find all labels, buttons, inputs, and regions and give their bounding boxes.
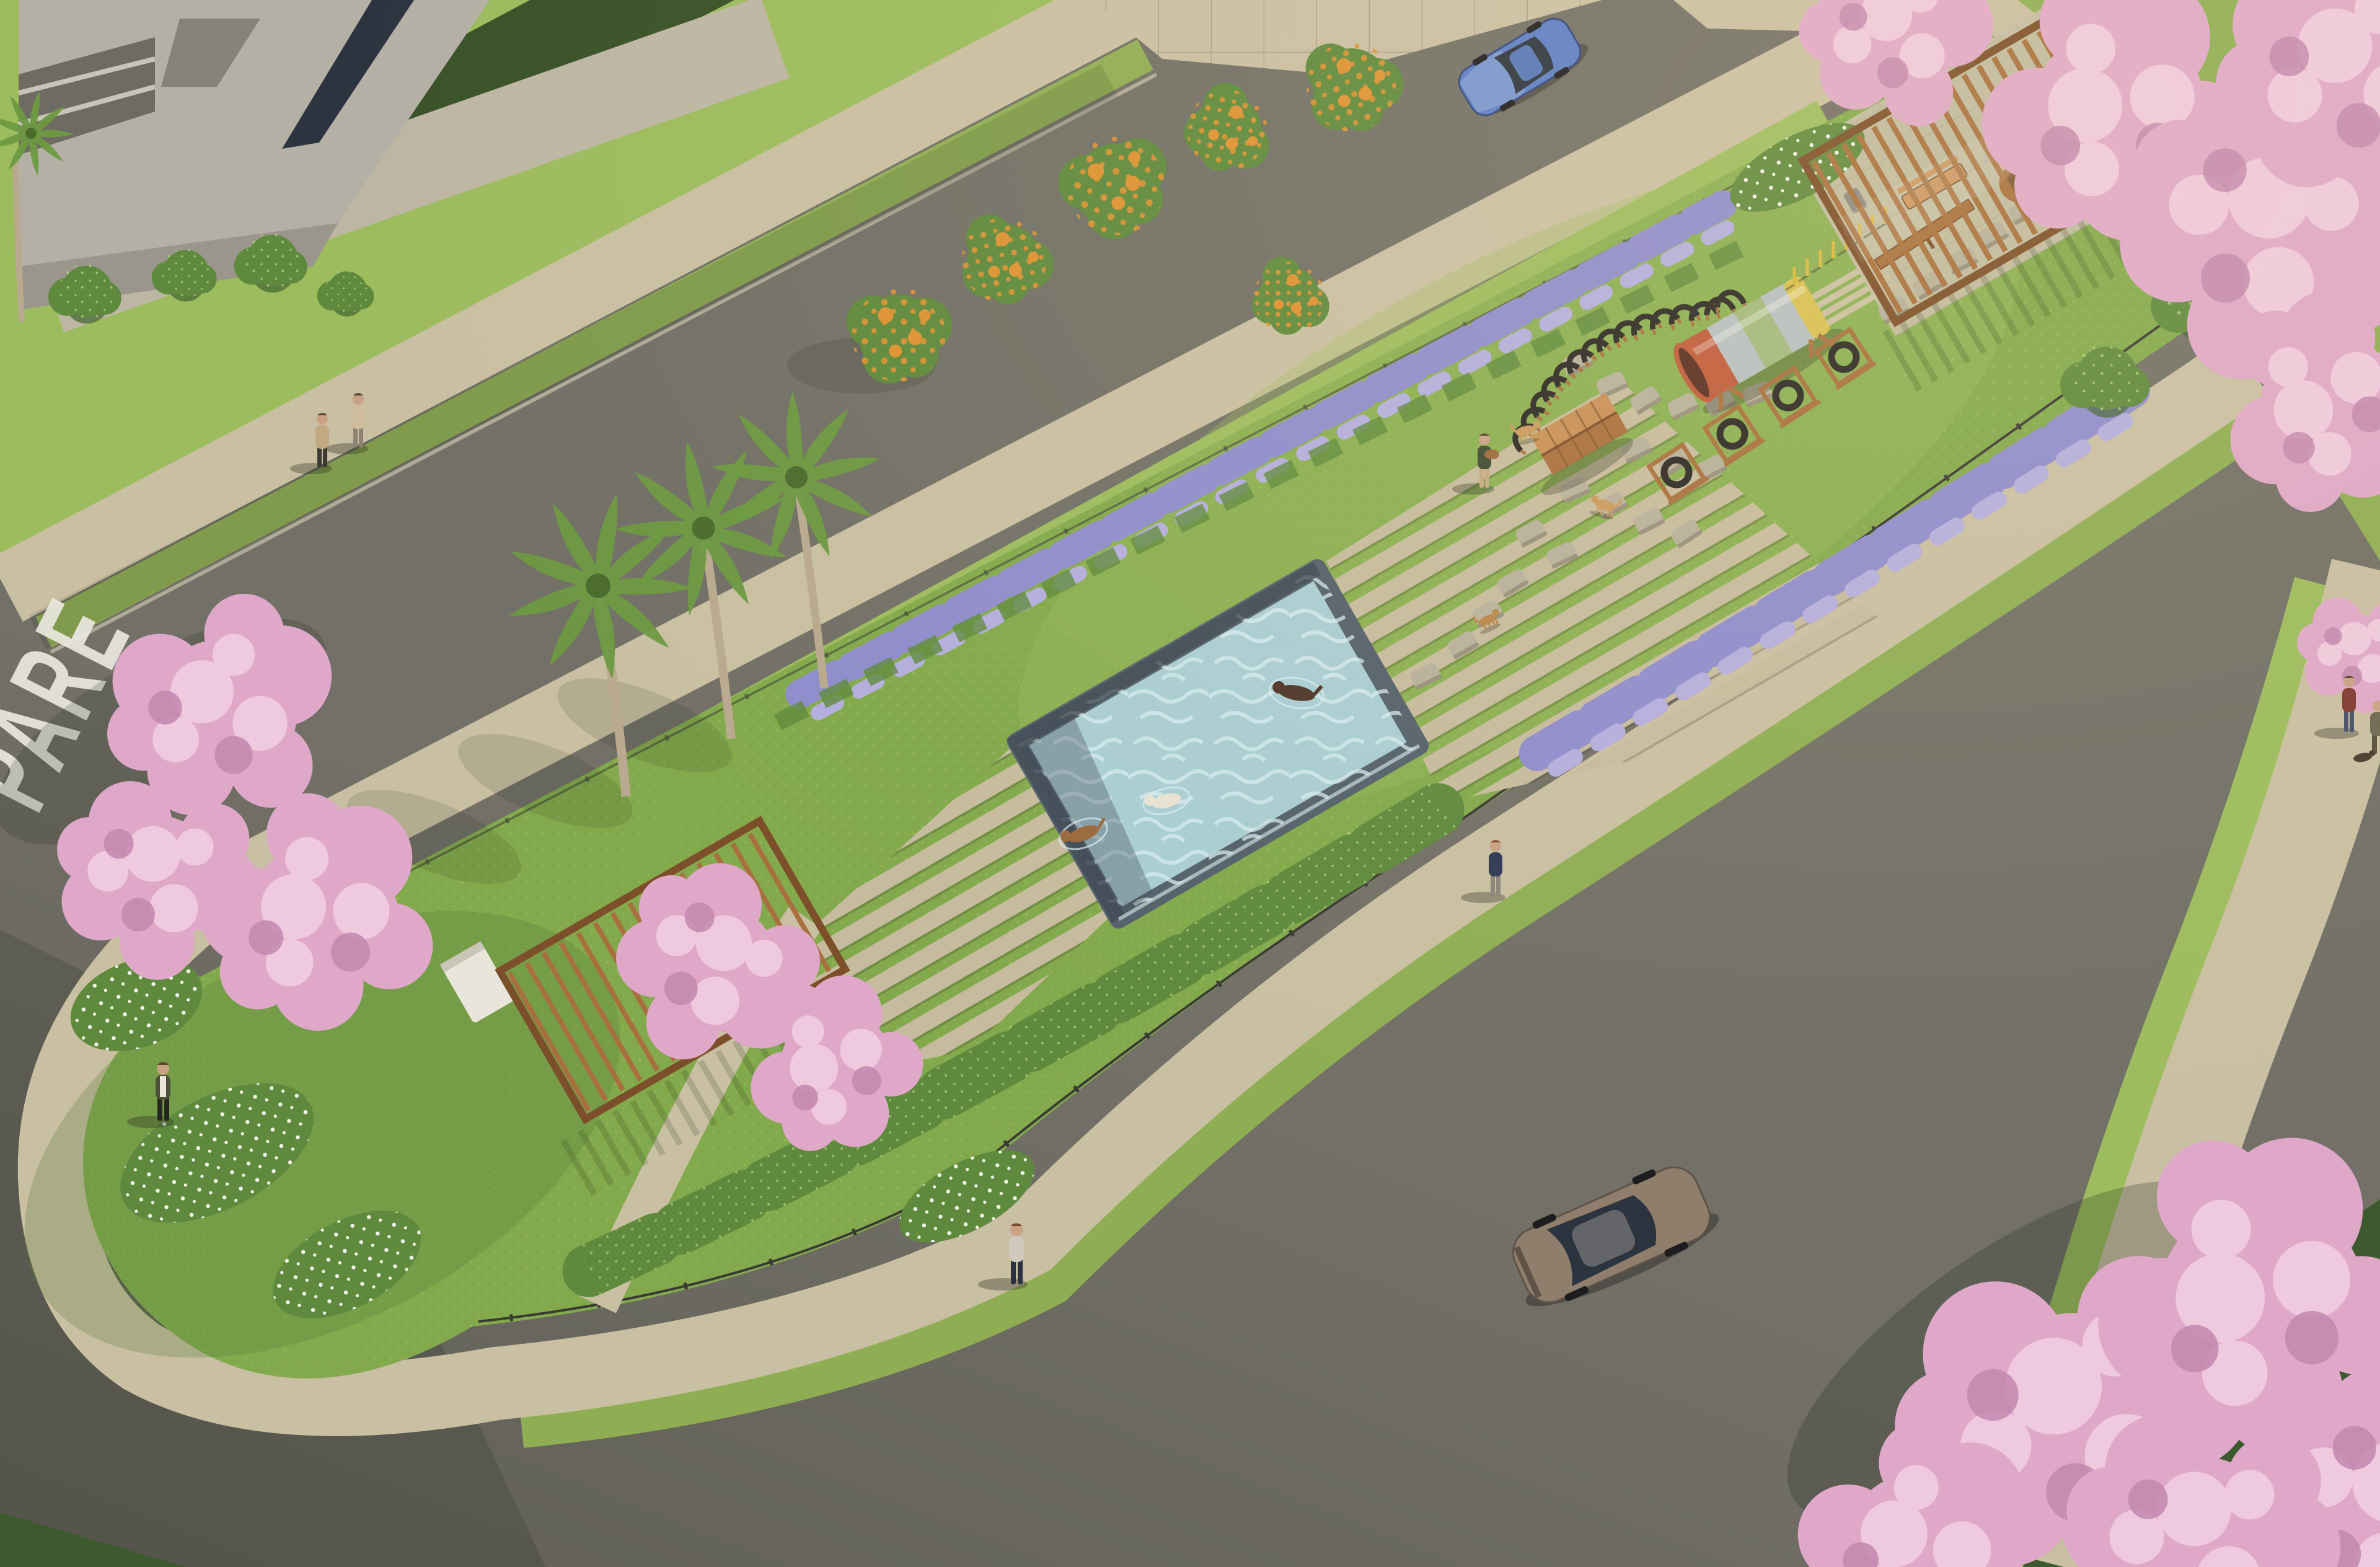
aerial-dog-park-rendering: PARE	[0, 0, 2380, 1567]
sunlight-tint	[0, 0, 2380, 1567]
